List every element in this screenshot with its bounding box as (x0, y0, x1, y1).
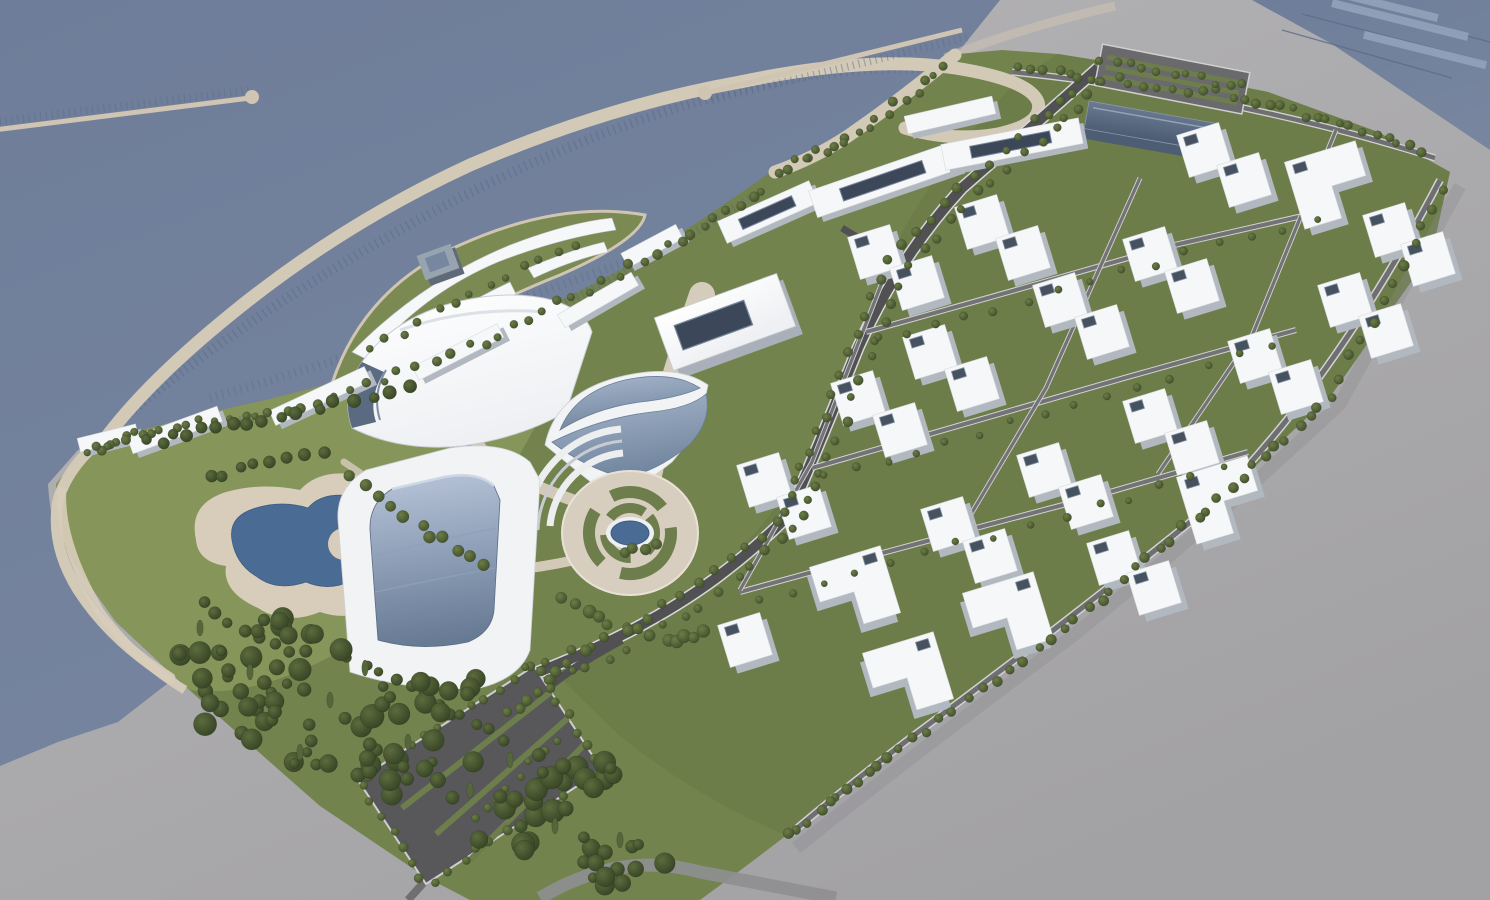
fountain-pool (611, 521, 649, 545)
masterplan-scene (0, 0, 1490, 900)
circular-plaza (562, 471, 698, 595)
masterplan-rendering (0, 0, 1490, 900)
